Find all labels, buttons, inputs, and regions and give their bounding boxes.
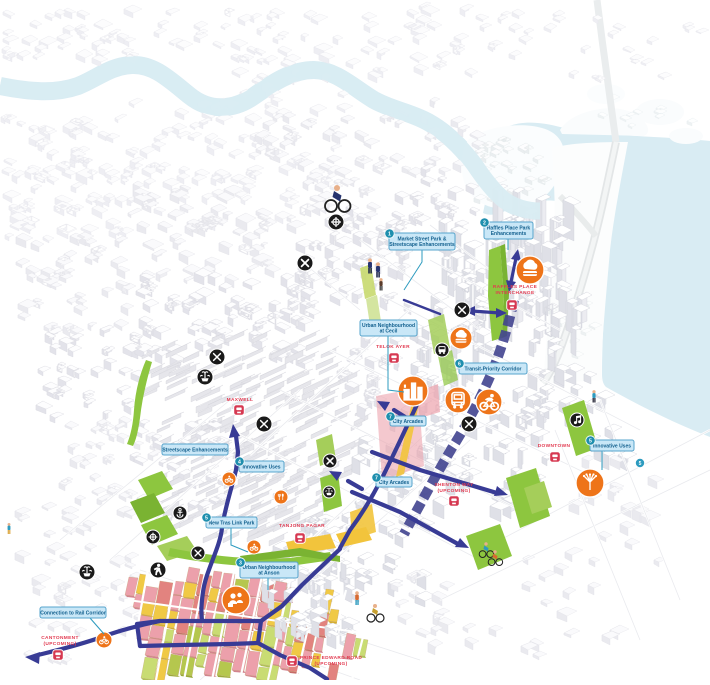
svg-text:Innovative Uses: Innovative Uses bbox=[242, 464, 280, 470]
svg-text:2: 2 bbox=[483, 220, 486, 226]
svg-text:Market Street Park &Streetscap: Market Street Park &Streetscape Enhancem… bbox=[389, 236, 455, 248]
svg-text:1: 1 bbox=[388, 231, 391, 237]
svg-text:5: 5 bbox=[589, 438, 592, 444]
svg-text:4: 4 bbox=[238, 459, 241, 465]
svg-text:New Tras Link Park: New Tras Link Park bbox=[209, 520, 255, 526]
svg-text:7: 7 bbox=[389, 414, 392, 420]
svg-text:Transit-Priority Corridor: Transit-Priority Corridor bbox=[465, 366, 522, 372]
svg-text:5: 5 bbox=[639, 461, 642, 467]
svg-text:7: 7 bbox=[375, 475, 378, 481]
svg-text:MAXWELL: MAXWELL bbox=[227, 397, 254, 403]
svg-text:6: 6 bbox=[458, 361, 461, 367]
svg-text:5: 5 bbox=[205, 515, 208, 521]
svg-text:DOWNTOWN: DOWNTOWN bbox=[538, 443, 571, 449]
svg-text:City Arcades: City Arcades bbox=[393, 419, 424, 425]
svg-text:Raffles Place ParkEnhancements: Raffles Place ParkEnhancements bbox=[487, 225, 531, 237]
svg-text:Innovative Uses: Innovative Uses bbox=[593, 443, 631, 449]
svg-text:Connection to Rail Corridor: Connection to Rail Corridor bbox=[40, 610, 106, 616]
svg-text:TELOK AYER: TELOK AYER bbox=[376, 344, 410, 350]
svg-text:3: 3 bbox=[239, 560, 242, 566]
svg-text:City Arcades: City Arcades bbox=[379, 480, 410, 486]
svg-text:Streetscape Enhancements: Streetscape Enhancements bbox=[162, 447, 228, 453]
svg-text:TANJONG PAGAR: TANJONG PAGAR bbox=[279, 523, 325, 529]
